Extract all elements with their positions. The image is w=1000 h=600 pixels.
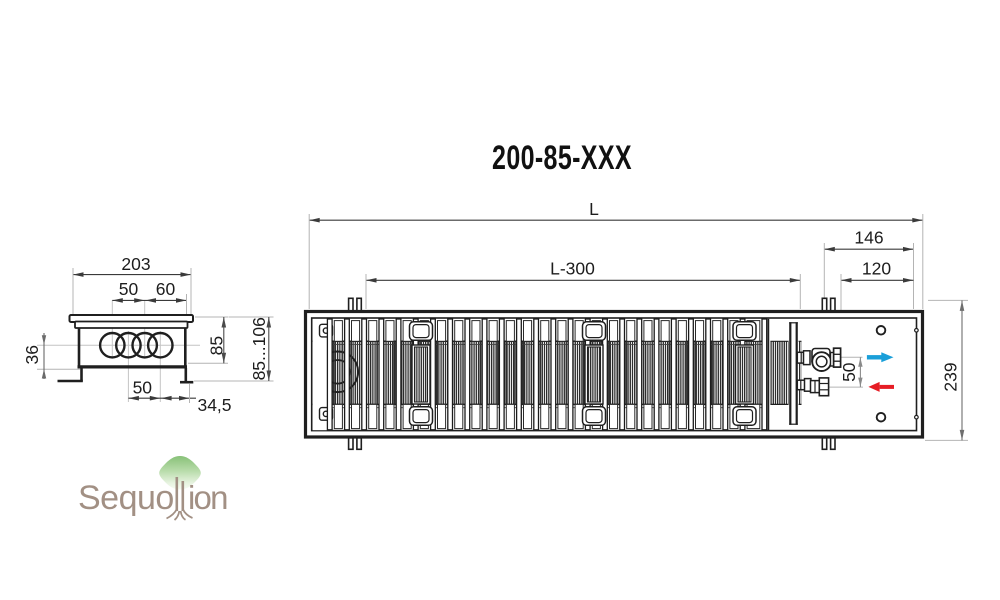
svg-text:239: 239 — [941, 362, 961, 391]
svg-text:50: 50 — [133, 378, 153, 398]
svg-text:ion: ion — [188, 479, 227, 516]
svg-text:120: 120 — [862, 259, 891, 279]
svg-text:85: 85 — [207, 336, 227, 355]
svg-text:203: 203 — [121, 254, 150, 274]
svg-text:60: 60 — [156, 279, 176, 299]
svg-text:50: 50 — [119, 279, 139, 299]
svg-text:200-85-XXX: 200-85-XXX — [492, 139, 632, 177]
svg-text:L: L — [589, 199, 599, 219]
svg-text:146: 146 — [854, 228, 883, 248]
svg-text:85...106: 85...106 — [249, 317, 269, 380]
svg-text:L-300: L-300 — [550, 259, 595, 279]
svg-text:50: 50 — [839, 362, 859, 382]
svg-text:36: 36 — [22, 345, 42, 364]
svg-text:Sequo: Sequo — [78, 479, 174, 517]
svg-text:34,5: 34,5 — [197, 395, 231, 415]
